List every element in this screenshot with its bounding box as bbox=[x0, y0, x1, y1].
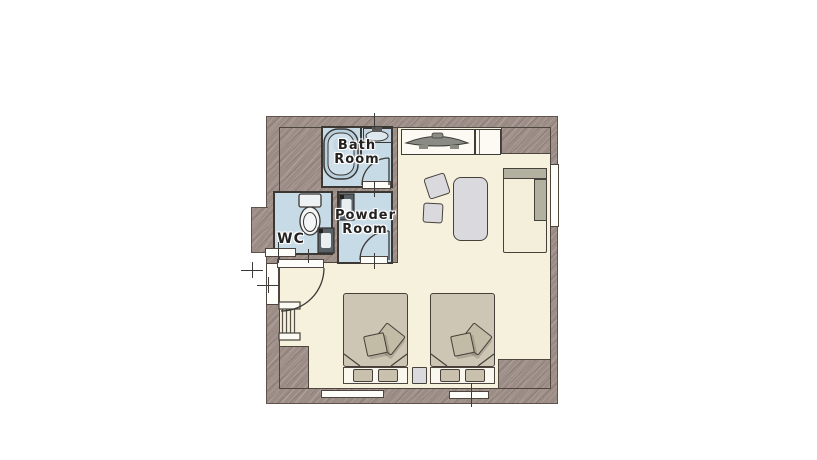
dimension-tick-wc-door bbox=[278, 242, 280, 263]
dimension-tick-top bbox=[374, 113, 376, 129]
tv-foot-right bbox=[450, 145, 459, 149]
toilet-tank bbox=[299, 194, 321, 207]
dimension-tick-powder-door bbox=[374, 253, 376, 269]
powder-room-label-line1: Powder bbox=[335, 209, 395, 223]
dimension-tick-entry bbox=[308, 249, 310, 263]
bathroom-label-line2: Room bbox=[321, 153, 393, 167]
dimension-cross-2-v bbox=[268, 277, 270, 293]
floor-plan: Bath Room Powder Room WC bbox=[266, 116, 558, 404]
dimension-tick-bath-door bbox=[374, 181, 376, 197]
bathroom-label: Bath Room bbox=[321, 139, 393, 167]
powder-sink-faucet bbox=[340, 195, 344, 199]
powder-room-label-line2: Room bbox=[335, 223, 395, 237]
bathroom-label-line1: Bath bbox=[321, 139, 393, 153]
wc-label: WC bbox=[277, 232, 305, 246]
fixtures-overlay bbox=[267, 117, 559, 405]
duvet-fold-lines bbox=[344, 354, 494, 366]
wc-sink-faucet bbox=[319, 229, 323, 233]
tv-foot-left bbox=[419, 145, 428, 149]
dimension-tick-window bbox=[471, 383, 473, 407]
dimension-cross-1-v bbox=[252, 262, 254, 278]
floor-plan-image: Bath Room Powder Room WC bbox=[0, 0, 817, 460]
wall-bump-out bbox=[251, 207, 268, 253]
tv-mount bbox=[432, 133, 443, 138]
powder-room-label: Powder Room bbox=[335, 209, 395, 237]
wc-sink-basin bbox=[321, 233, 331, 248]
